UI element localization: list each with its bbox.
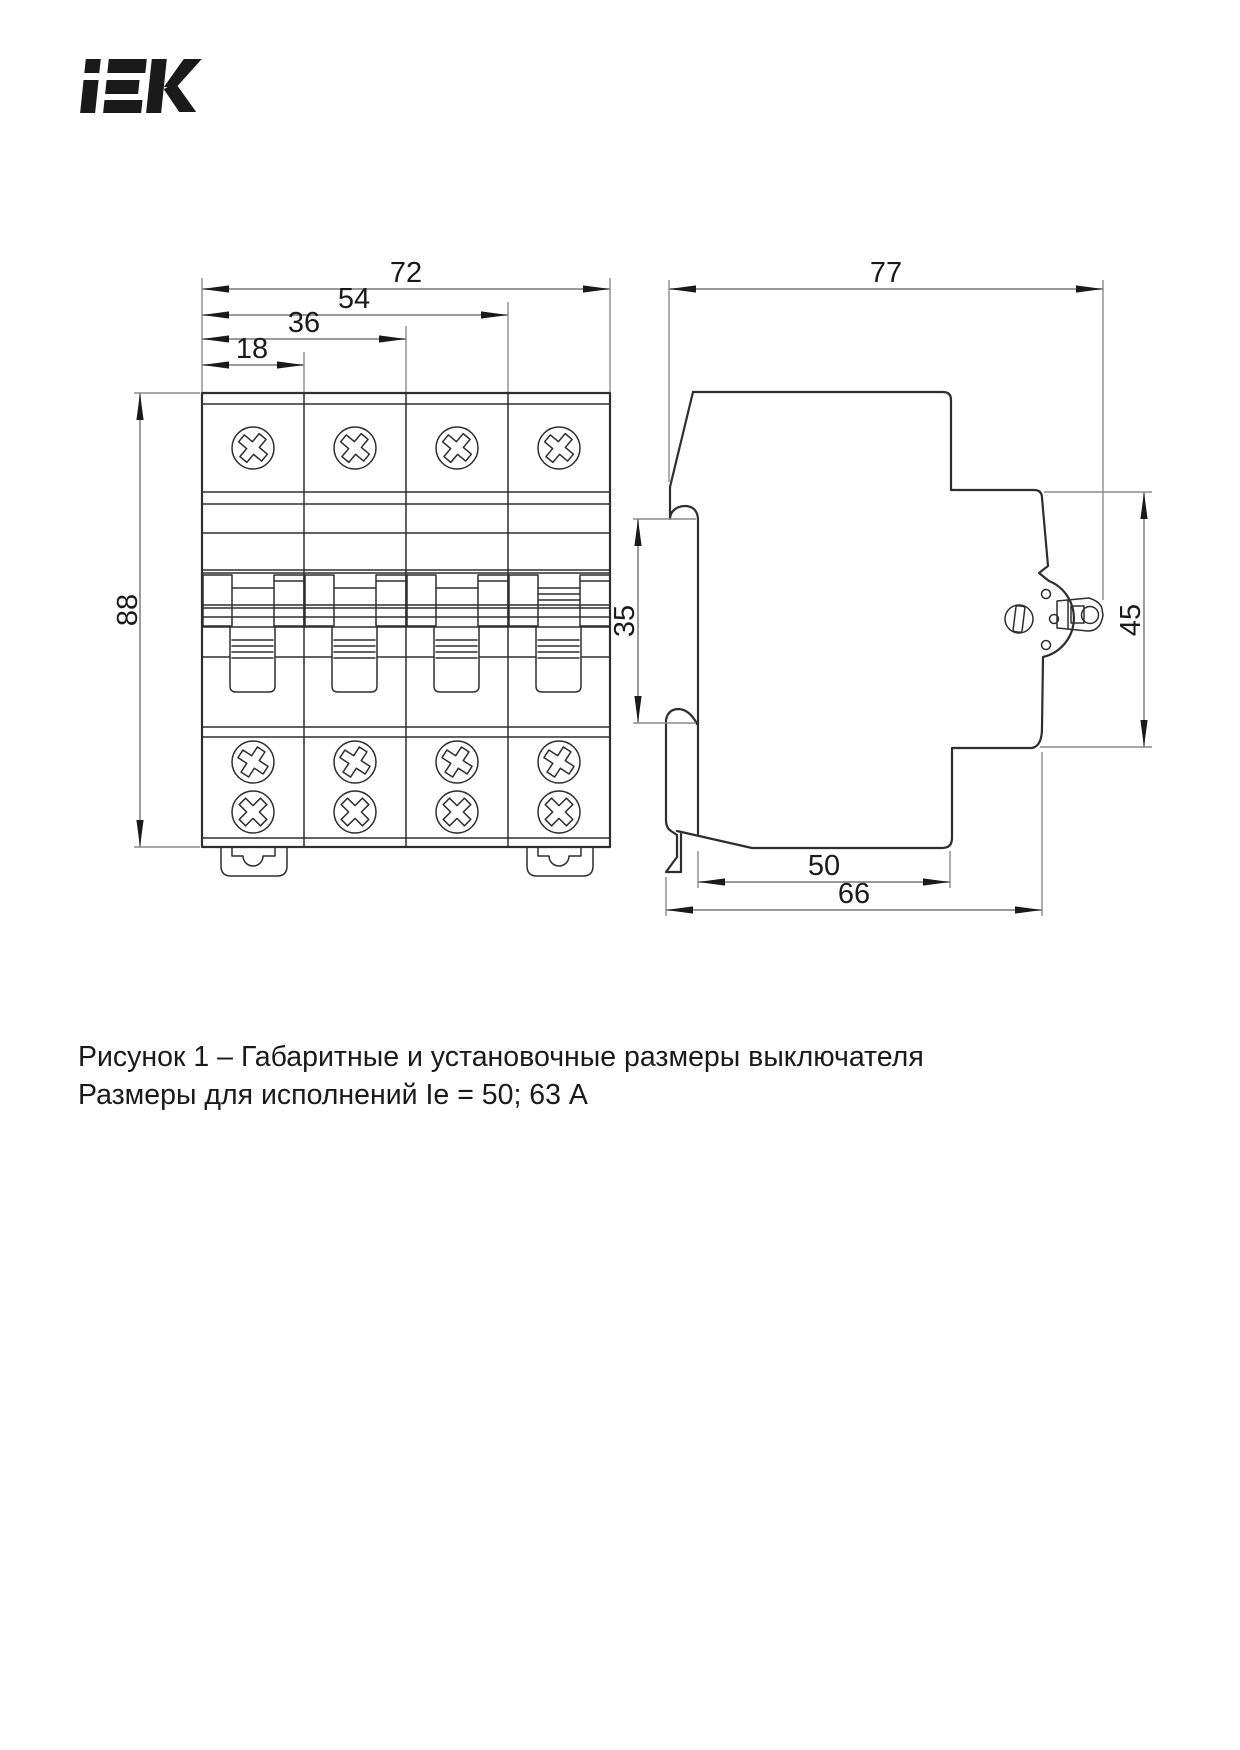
terminal-screw-icon: [232, 427, 274, 469]
dim-label-side-mounting-depth: 66: [838, 878, 870, 910]
pivot-dot: [1042, 641, 1051, 650]
breaker-poles: [203, 393, 610, 847]
terminal-screw-icon: [436, 791, 478, 833]
toggle-boss: [1005, 590, 1059, 650]
figure-caption-line1: Рисунок 1 – Габаритные и установочные ра…: [78, 1038, 924, 1076]
din-clip-spring: [666, 709, 697, 872]
din-channel-face: [670, 392, 698, 834]
toggle-handle-side: [1057, 598, 1103, 631]
toggle-window-post: [305, 575, 334, 626]
terminal-screw-icon: [538, 741, 580, 783]
dim-label-front-three-modules: 54: [338, 283, 370, 315]
breaker-toggle-handle: [434, 628, 479, 692]
logo-letter-i-stem: [80, 80, 98, 113]
terminal-screw-icon: [436, 741, 478, 783]
dim-label-side-overall-depth: 77: [870, 257, 902, 289]
side-view-dimensions: 77 35 45 50 66: [609, 257, 1152, 916]
front-view: [202, 393, 610, 876]
toggle-window-post: [407, 575, 436, 626]
terminal-screw-icon: [436, 427, 478, 469]
dim-label-side-front-height: 45: [1115, 604, 1147, 636]
breaker-toggle-handle: [332, 628, 377, 692]
dim-label-side-body-depth: 50: [808, 850, 840, 882]
toggle-window-post: [274, 575, 304, 626]
terminal-screw-icon: [334, 741, 376, 783]
dim-label-front-one-module: 18: [236, 333, 268, 365]
dim-label-front-height: 88: [112, 594, 144, 626]
front-view-dimensions: 72 54 36 18 88: [112, 257, 610, 847]
breaker-toggle-handle: [230, 628, 275, 692]
terminal-screw-icon: [538, 791, 580, 833]
pivot-dot: [1042, 590, 1051, 599]
breaker-toggle-handle: [536, 628, 581, 692]
dim-label-front-overall-width: 72: [390, 257, 422, 289]
iek-logo: [80, 59, 202, 113]
toggle-window-post: [509, 575, 538, 626]
drawing-page: 72 54 36 18 88: [0, 0, 1240, 1750]
side-view: [666, 392, 1103, 872]
terminal-screw-icon: [334, 427, 376, 469]
logo-letter-k: [146, 59, 167, 113]
terminal-screw-icon: [232, 791, 274, 833]
terminal-screw-icon: [232, 741, 274, 783]
logo-letter-i-dot: [84, 59, 100, 73]
din-clip-right: [527, 848, 593, 876]
dim-label-front-two-modules: 36: [288, 307, 320, 339]
logo-letter-e: [107, 59, 146, 73]
technical-drawing: 72 54 36 18 88: [0, 0, 1240, 1750]
terminal-screw-icon: [538, 427, 580, 469]
dim-label-side-din-rail: 35: [609, 605, 641, 637]
toggle-window-post: [478, 575, 508, 626]
terminal-screw-icon: [334, 791, 376, 833]
screw-slot-icon: [1005, 605, 1033, 633]
din-clip-left: [221, 848, 287, 876]
toggle-window-post: [580, 575, 610, 626]
figure-caption: Рисунок 1 – Габаритные и установочные ра…: [78, 1038, 924, 1114]
toggle-window-post: [376, 575, 406, 626]
toggle-window-post: [203, 575, 232, 626]
figure-caption-line2: Размеры для исполнений Ie = 50; 63 А: [78, 1076, 924, 1114]
